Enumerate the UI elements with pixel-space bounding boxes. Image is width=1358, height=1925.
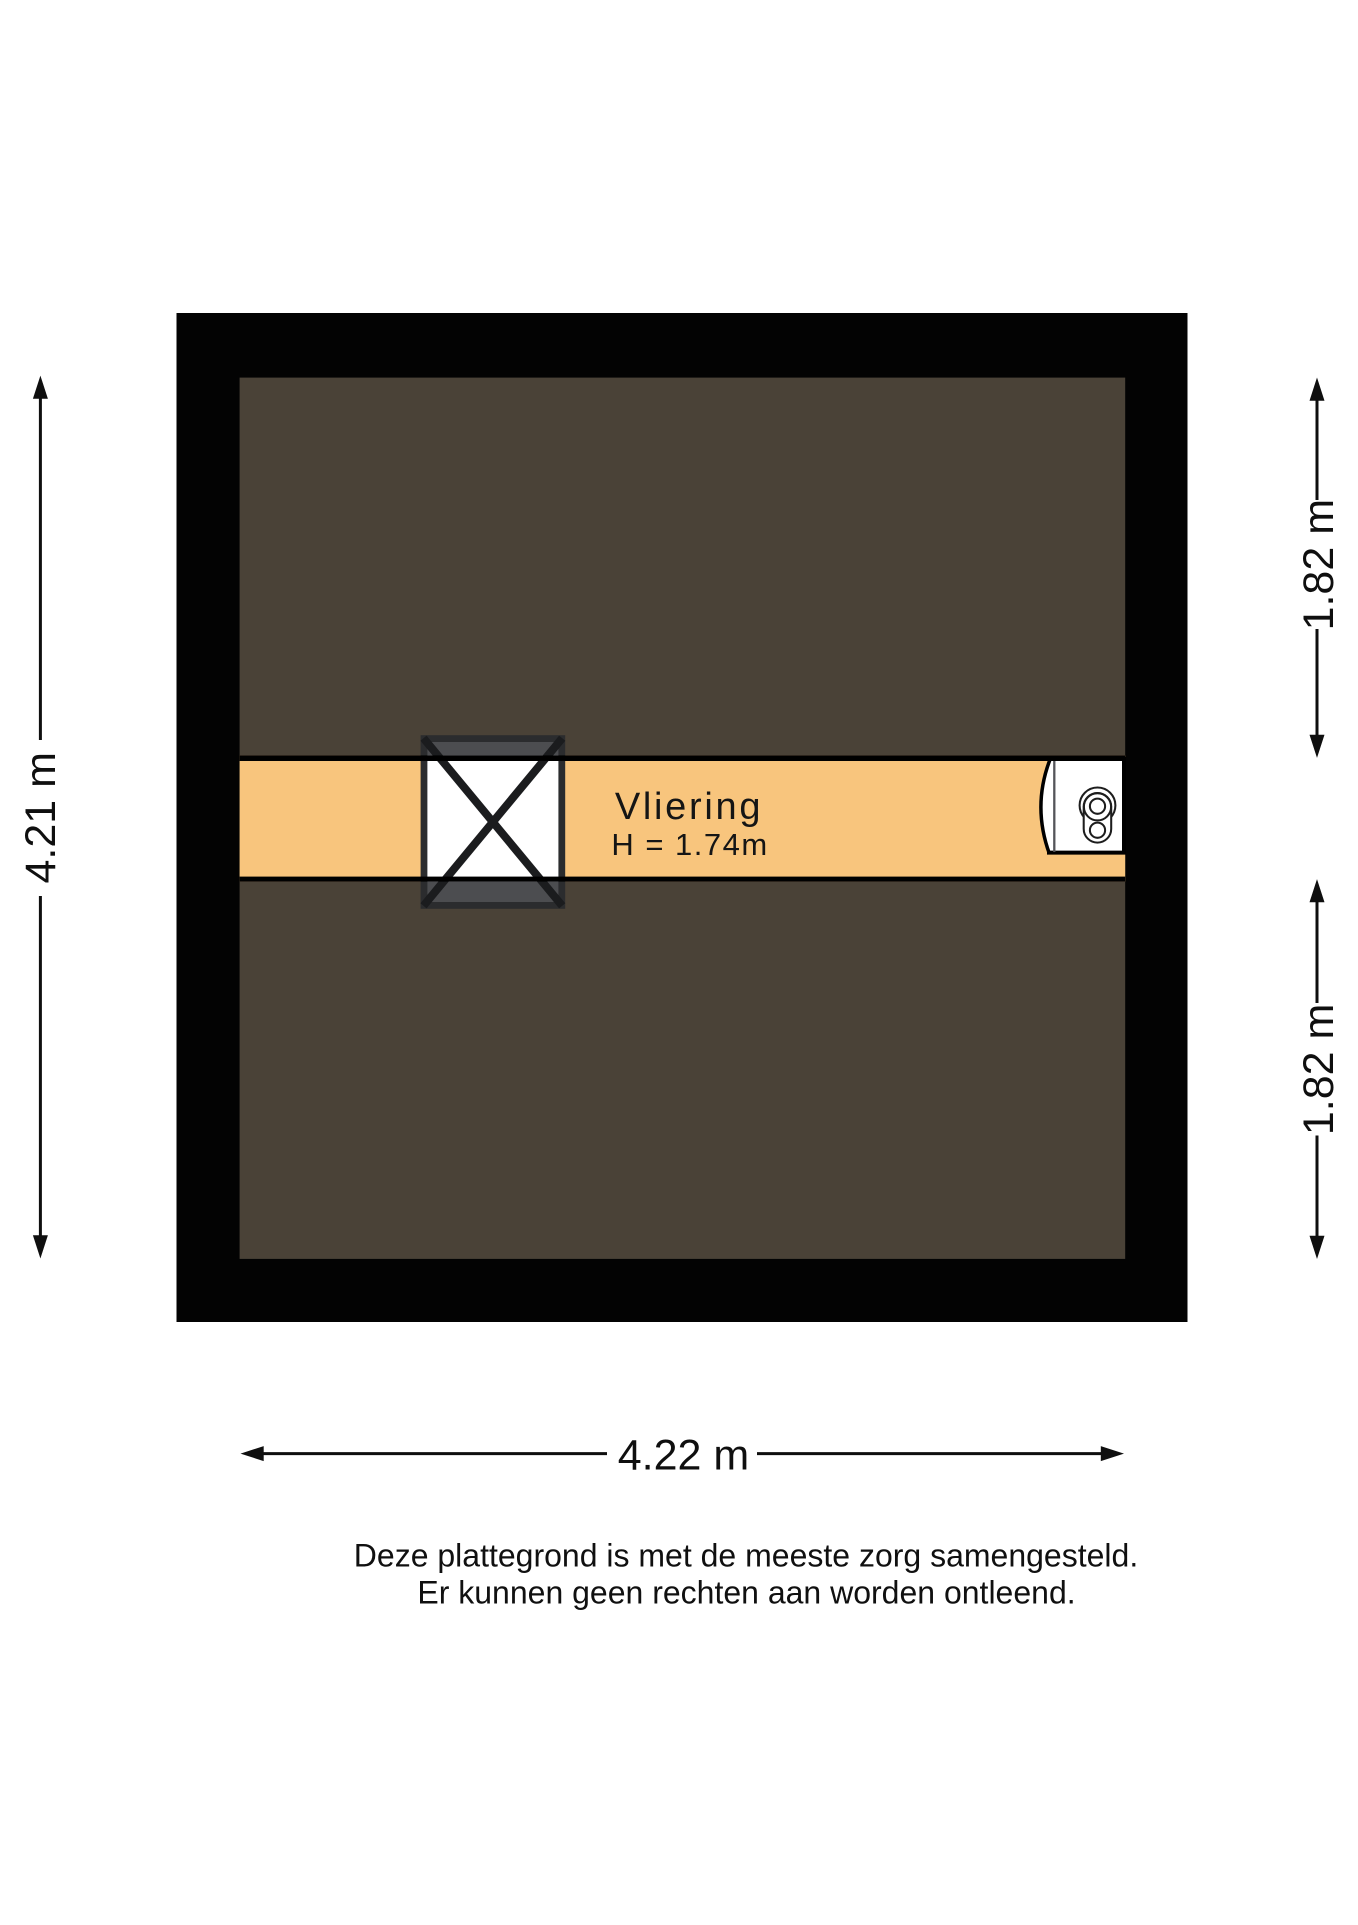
svg-text:4.22 m: 4.22 m	[618, 1432, 749, 1480]
svg-text:H = 1.74m: H = 1.74m	[611, 827, 768, 862]
svg-text:Deze plattegrond is met de mee: Deze plattegrond is met de meeste zorg s…	[354, 1538, 1138, 1574]
svg-text:1.82 m: 1.82 m	[1295, 499, 1343, 630]
svg-text:4.21 m: 4.21 m	[17, 752, 65, 883]
svg-text:Vliering: Vliering	[615, 786, 763, 828]
svg-text:1.82 m: 1.82 m	[1295, 1004, 1343, 1135]
svg-text:Er kunnen geen rechten aan wor: Er kunnen geen rechten aan worden ontlee…	[417, 1575, 1075, 1611]
